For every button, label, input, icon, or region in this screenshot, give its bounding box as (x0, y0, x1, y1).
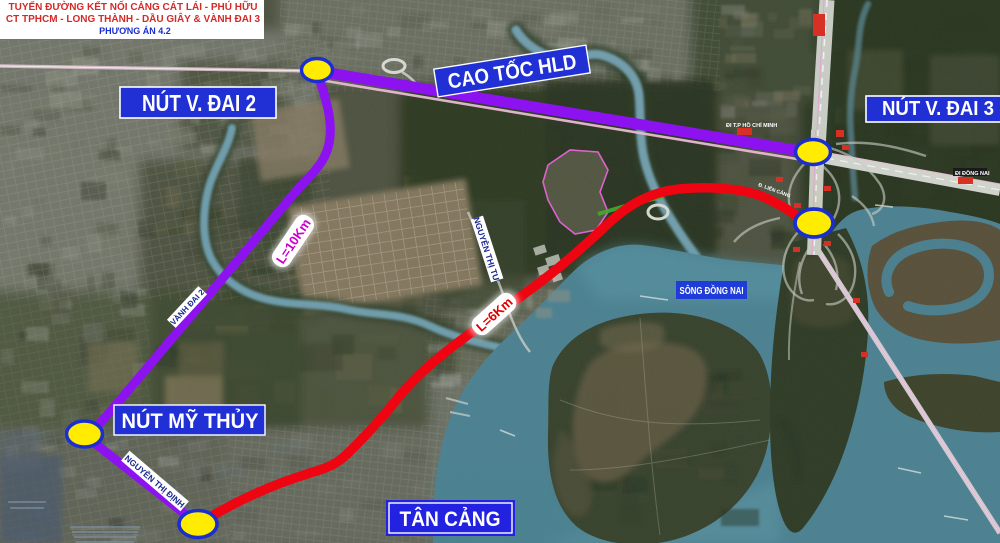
svg-text:PHƯƠNG ÁN 4.2: PHƯƠNG ÁN 4.2 (99, 26, 171, 36)
svg-text:SÔNG ĐỒNG NAI: SÔNG ĐỒNG NAI (680, 284, 744, 297)
svg-text:NÚT MỸ THỦY: NÚT MỸ THỦY (122, 409, 259, 433)
svg-text:ĐI ĐỒNG NAI: ĐI ĐỒNG NAI (955, 170, 990, 177)
svg-text:CT TPHCM - LONG THÀNH - DẦU GI: CT TPHCM - LONG THÀNH - DẦU GIÂY & VÀNH … (6, 12, 261, 25)
svg-text:ĐI T.P HỒ CHÍ MINH: ĐI T.P HỒ CHÍ MINH (726, 121, 777, 129)
svg-text:NÚT V. ĐAI 2: NÚT V. ĐAI 2 (142, 89, 256, 116)
svg-text:TÂN CẢNG: TÂN CẢNG (400, 507, 501, 531)
svg-text:NÚT V. ĐAI 3: NÚT V. ĐAI 3 (882, 96, 994, 120)
svg-text:TUYẾN ĐƯỜNG KẾT NỐI CẢNG CÁT L: TUYẾN ĐƯỜNG KẾT NỐI CẢNG CÁT LÁI - PHÚ H… (8, 0, 257, 13)
